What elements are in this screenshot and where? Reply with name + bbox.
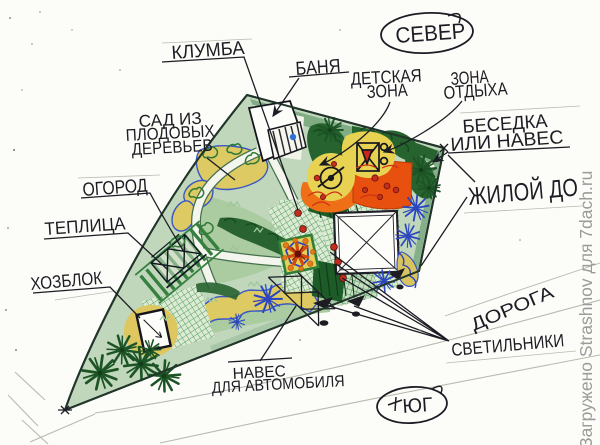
svg-text:Загружено Strashnov для 7dach.: Загружено Strashnov для 7dach.ru	[576, 171, 596, 445]
svg-text:БАНЯ: БАНЯ	[295, 56, 341, 80]
svg-text:СЕВЕР: СЕВЕР	[395, 18, 467, 48]
svg-text:ЗОНА: ЗОНА	[366, 80, 408, 102]
svg-text:ЮГ: ЮГ	[402, 394, 434, 418]
